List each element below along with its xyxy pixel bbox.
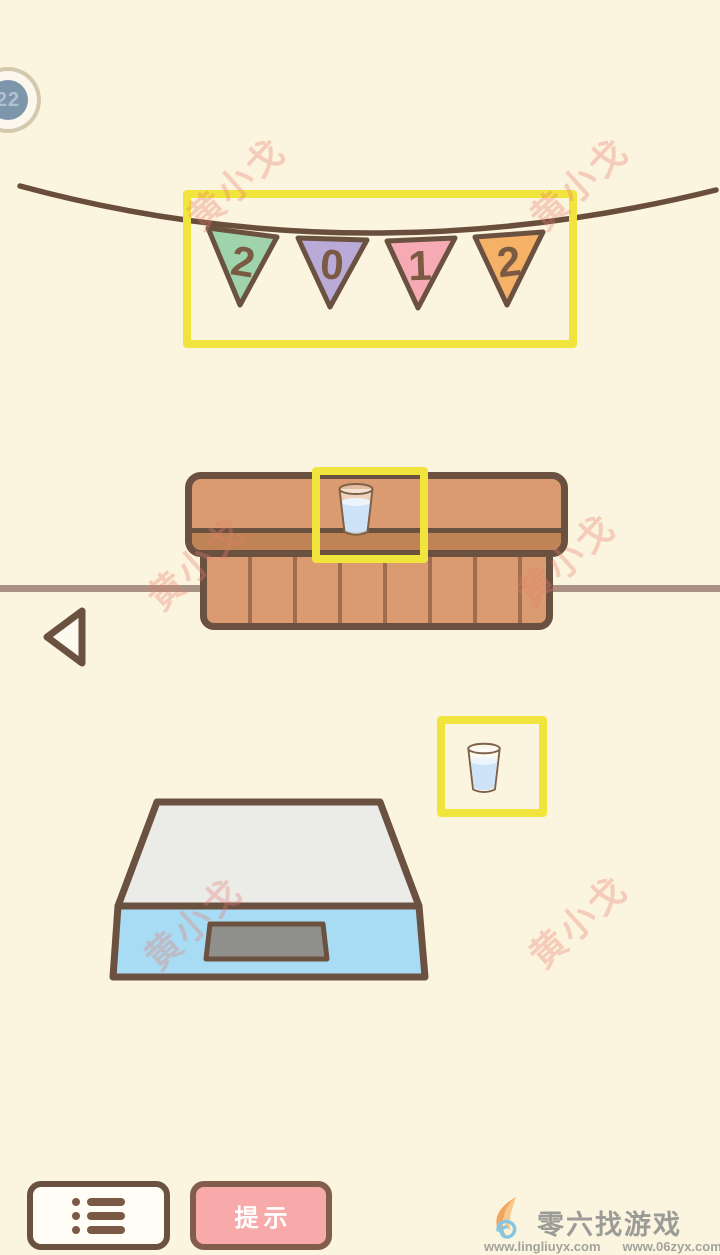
site-name: 零六找游戏 xyxy=(537,1203,682,1242)
highlight-box-banner xyxy=(183,190,577,348)
hint-button[interactable]: 提示 xyxy=(190,1181,332,1250)
menu-button[interactable] xyxy=(27,1181,170,1250)
highlight-box-cabinet-glass xyxy=(312,467,428,563)
level-badge-ring: 22 xyxy=(0,71,37,129)
watermark-text: 黄小戈 xyxy=(516,862,638,979)
scale-platform xyxy=(118,802,419,906)
level-number: 22 xyxy=(0,89,20,112)
site-url-right: www.06zyx.com xyxy=(623,1239,720,1254)
site-url-left: www.lingliuyx.com xyxy=(484,1239,601,1254)
menu-list-icon xyxy=(72,1198,125,1234)
highlight-box-second-glass xyxy=(437,716,547,817)
level-badge-disc: 22 xyxy=(0,80,28,120)
hint-button-label: 提示 xyxy=(230,1198,293,1233)
site-logo-flame-icon xyxy=(486,1196,528,1244)
site-urls: www.lingliuyx.com www.06zyx.com xyxy=(484,1239,720,1254)
back-button[interactable] xyxy=(40,605,95,670)
level-badge: 22 xyxy=(0,67,41,133)
scale-display xyxy=(206,924,327,959)
back-arrow-icon xyxy=(47,611,82,663)
